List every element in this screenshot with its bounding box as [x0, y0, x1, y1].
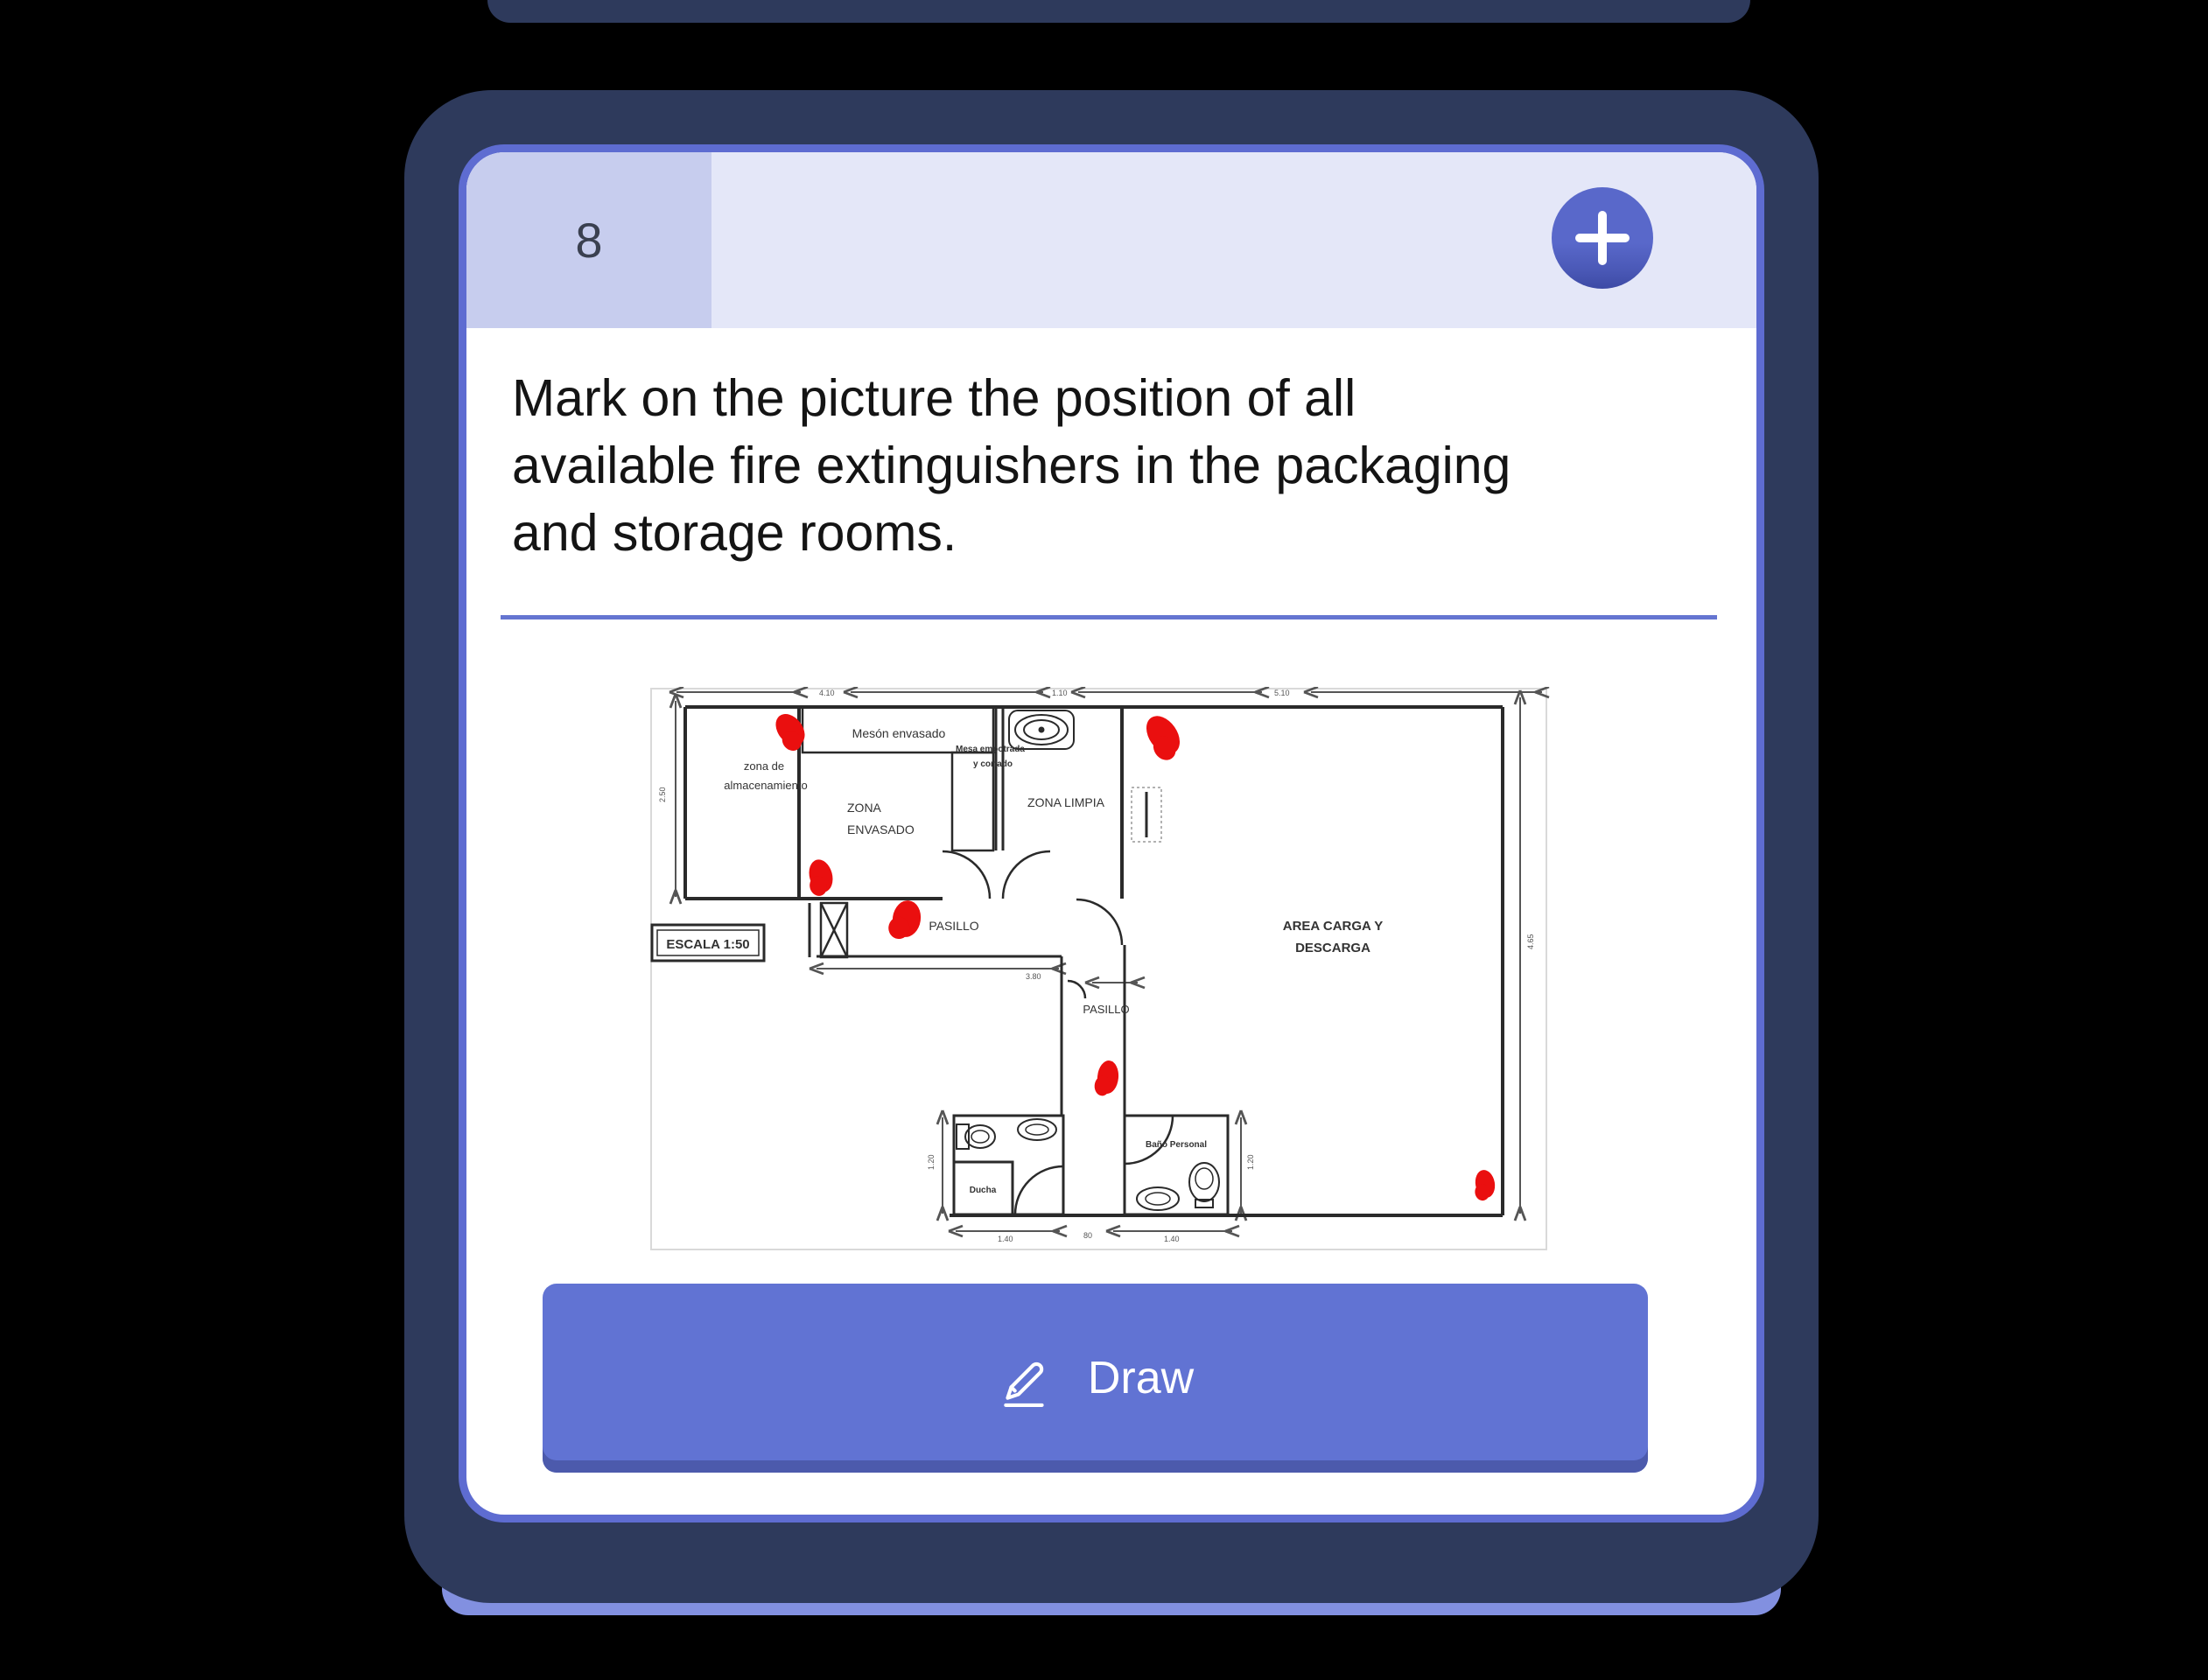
bathroom-right	[1125, 1116, 1228, 1214]
dimension-lines	[676, 692, 1542, 1231]
question-text: Mark on the picture the position of all …	[512, 365, 1702, 567]
escala-label: ESCALA 1:50	[666, 937, 749, 952]
door-arcs	[943, 851, 1173, 1214]
dim-label: 80	[1083, 1231, 1092, 1240]
room-label-meson: Mesón envasado	[852, 726, 946, 740]
sink-icon	[1009, 710, 1074, 749]
draw-button-label: Draw	[1088, 1352, 1194, 1404]
card-screen: 8 Mark on the picture the position of al…	[459, 144, 1764, 1522]
room-label-pasillo: PASILLO	[929, 919, 978, 933]
room-label-envasado: ZONA	[847, 801, 882, 815]
question-line: available fire extinguishers in the pack…	[512, 432, 1702, 500]
dim-label: 4.10	[819, 689, 835, 697]
dim-label: 1.40	[1164, 1235, 1180, 1243]
dim-label: 1.40	[998, 1235, 1013, 1243]
dim-label: 5.10	[1274, 689, 1290, 697]
room-label-envasado: ENVASADO	[847, 822, 915, 836]
question-card: 8 Mark on the picture the position of al…	[404, 90, 1819, 1603]
escala-box: ESCALA 1:50	[652, 925, 764, 961]
room-label-pasillo: PASILLO	[1083, 1003, 1129, 1016]
dim-label: 1.20	[927, 1154, 936, 1170]
room-label-storage: zona de	[744, 759, 784, 773]
question-line: Mark on the picture the position of all	[512, 365, 1702, 432]
room-label-limpia: ZONA LIMPIA	[1027, 795, 1105, 809]
vent-icon	[1132, 787, 1161, 842]
question-number: 8	[466, 152, 711, 328]
pencil-icon	[997, 1347, 1055, 1409]
room-label-area: AREA CARGA Y	[1283, 919, 1383, 934]
dim-label: 1.10	[1052, 689, 1068, 697]
draw-button[interactable]: Draw	[543, 1284, 1648, 1473]
add-button[interactable]	[1552, 187, 1653, 289]
dim-label: 1.20	[1246, 1154, 1255, 1170]
question-divider	[501, 615, 1717, 619]
question-line: and storage rooms.	[512, 500, 1702, 567]
tiny-label: y cortado	[973, 759, 1013, 769]
bathroom-left	[954, 1116, 1063, 1214]
floor-plan-image[interactable]: 4.10 1.10 5.10 2.50 4.65 3.80 1.20 1.20 …	[648, 687, 1567, 1256]
dim-label: 2.50	[658, 787, 667, 802]
plan-walls	[685, 707, 1503, 1215]
room-label-area: DESCARGA	[1295, 941, 1370, 955]
floor-plan-svg: 4.10 1.10 5.10 2.50 4.65 3.80 1.20 1.20 …	[648, 687, 1567, 1256]
dim-label: 3.80	[1026, 972, 1041, 981]
room-label-storage: almacenamiento	[724, 779, 807, 792]
plan-inner-walls	[810, 707, 1125, 1116]
question-header: 8	[466, 152, 1756, 328]
previous-card-peek	[487, 0, 1750, 23]
plan-frame	[651, 689, 1546, 1249]
room-label-bano: Baño Personal	[1146, 1140, 1207, 1150]
room-label-ducha: Ducha	[970, 1186, 997, 1195]
dim-label: 4.65	[1526, 934, 1535, 949]
tiny-label: Mesa empotrada	[956, 745, 1025, 754]
